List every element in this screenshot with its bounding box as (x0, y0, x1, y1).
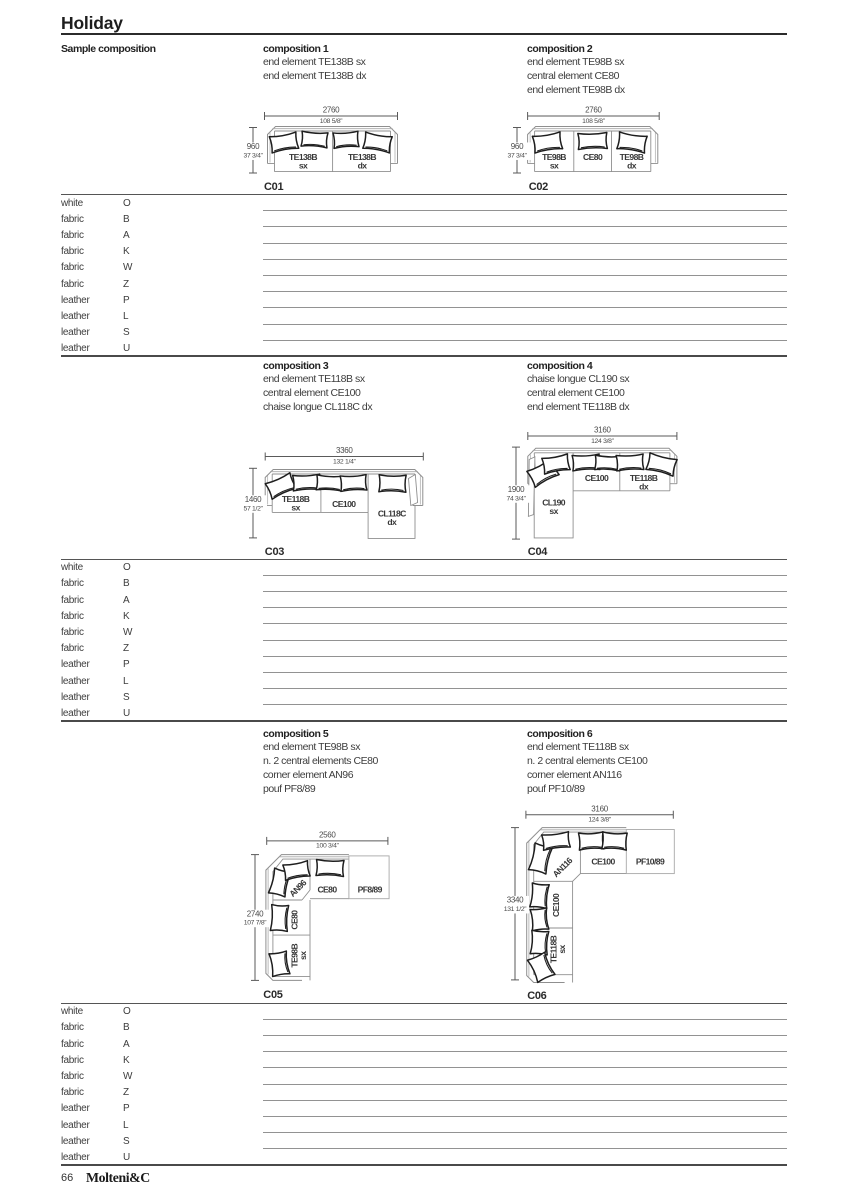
svg-text:2760: 2760 (585, 106, 602, 115)
svg-text:132 1/4”: 132 1/4” (333, 458, 357, 465)
svg-text:TE138Bsx: TE138Bsx (289, 152, 317, 171)
svg-text:CE80: CE80 (289, 910, 299, 930)
svg-text:131 1/2”: 131 1/2” (504, 906, 528, 913)
svg-text:TE118Bsx: TE118Bsx (549, 935, 568, 963)
svg-text:3160: 3160 (594, 426, 611, 435)
svg-text:57 1/2”: 57 1/2” (243, 505, 263, 512)
svg-text:TE98Bsx: TE98Bsx (289, 944, 308, 968)
svg-text:PF10/89: PF10/89 (636, 857, 665, 867)
svg-text:CE80: CE80 (583, 152, 603, 162)
svg-text:1900: 1900 (508, 485, 525, 494)
svg-text:107 7/8”: 107 7/8” (244, 920, 268, 927)
svg-text:2560: 2560 (319, 831, 336, 840)
svg-text:TE98Bdx: TE98Bdx (620, 152, 644, 171)
svg-text:100 3/4”: 100 3/4” (316, 843, 340, 850)
svg-text:CE100: CE100 (585, 473, 609, 483)
svg-text:74 3/4”: 74 3/4” (506, 495, 526, 502)
svg-text:37 3/4”: 37 3/4” (243, 152, 263, 159)
svg-text:CE80: CE80 (317, 884, 337, 894)
svg-text:124 3/8”: 124 3/8” (591, 438, 615, 445)
svg-text:3160: 3160 (591, 804, 608, 813)
svg-text:37 3/4”: 37 3/4” (507, 152, 527, 159)
svg-text:CE100: CE100 (591, 857, 615, 867)
svg-text:CL118Cdx: CL118Cdx (378, 509, 406, 528)
svg-text:108 5/8”: 108 5/8” (320, 118, 344, 125)
svg-text:2740: 2740 (247, 909, 264, 918)
svg-text:960: 960 (511, 142, 524, 151)
svg-text:TE118Bsx: TE118Bsx (282, 494, 310, 513)
svg-text:CL190sx: CL190sx (542, 498, 566, 517)
svg-text:3360: 3360 (336, 446, 353, 455)
svg-text:124 3/8”: 124 3/8” (588, 817, 612, 824)
svg-text:960: 960 (247, 142, 260, 151)
svg-text:TE118Bdx: TE118Bdx (630, 473, 658, 492)
svg-text:1460: 1460 (245, 495, 262, 504)
svg-text:TE138Bdx: TE138Bdx (348, 152, 376, 171)
svg-text:CE100: CE100 (551, 893, 561, 917)
svg-text:PF8/89: PF8/89 (358, 884, 383, 894)
svg-text:3340: 3340 (507, 896, 524, 905)
svg-text:108 5/8”: 108 5/8” (582, 118, 606, 125)
svg-text:AN116: AN116 (551, 855, 575, 879)
svg-text:2760: 2760 (323, 106, 340, 115)
svg-text:CE100: CE100 (332, 499, 356, 509)
svg-text:TE98Bsx: TE98Bsx (542, 152, 566, 171)
